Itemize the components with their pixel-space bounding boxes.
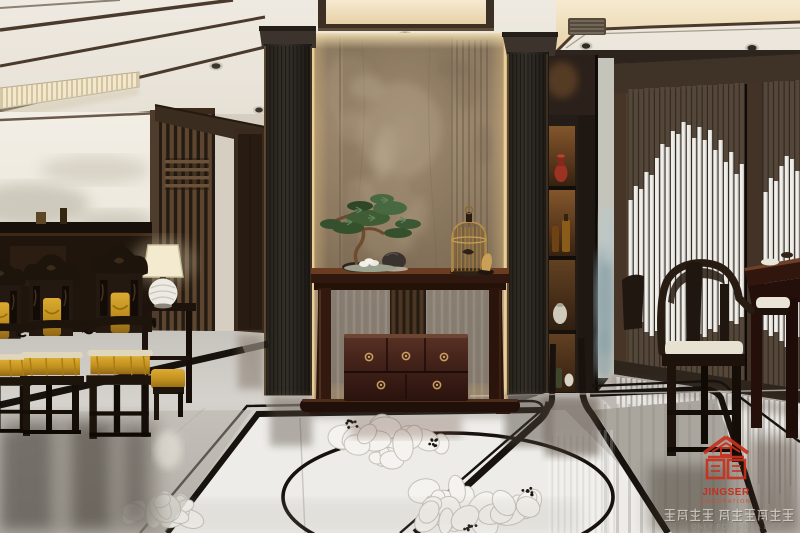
svg-text:JINGSER: JINGSER: [702, 487, 750, 498]
svg-text:ONLY FOR VILLA LIFE: ONLY FOR VILLA LIFE: [691, 524, 783, 531]
svg-text:DECORATION: DECORATION: [701, 499, 751, 505]
